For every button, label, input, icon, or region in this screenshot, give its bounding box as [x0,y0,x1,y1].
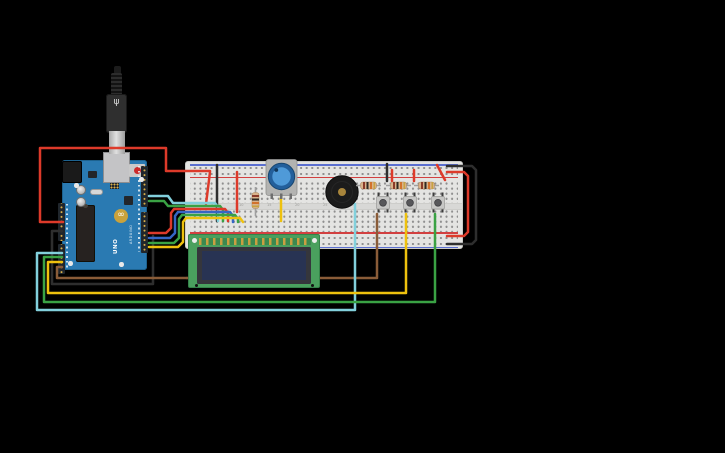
lcd-screen [202,251,306,280]
arduino-uno-board[interactable]: ∞ ARDUINO UNO [62,160,147,270]
lcd-screw-hole [312,238,317,243]
usb-cable[interactable]: ψ [106,64,129,156]
lcd-pin-header[interactable] [199,238,311,246]
usb-plug-metal [109,131,125,154]
circuit-canvas: 51015202530354045 ∞ ARDUINO UNO [0,0,725,453]
lcd-pad [311,284,314,287]
arduino-model-text: UNO [113,236,121,254]
crystal-oscillator [90,189,103,195]
analog-header[interactable] [58,244,65,274]
lcd-screw-hole [192,238,197,243]
lcd-display-16x2[interactable] [188,234,320,288]
atmega-chip [76,205,95,262]
power-header[interactable] [58,203,65,241]
breadboard-column-label: 30 [351,203,355,207]
breadboard-rows-f-j[interactable] [190,208,458,234]
digital-header-upper[interactable] [141,166,148,207]
digital-header-lower[interactable] [141,212,148,253]
arduino-logo: ∞ [114,209,128,223]
breadboard-pos-stripe-top [190,177,458,179]
breadboard-column-label: 35 [379,203,383,207]
usb-cable-strain-relief [111,73,122,95]
lcd-bezel [197,247,311,284]
mounting-hole [139,177,144,182]
usb-trident-icon: ψ [106,96,127,108]
breadboard-column-label: 45 [435,203,439,207]
usb-socket [103,152,130,183]
breadboard-column-label: 5 [211,203,213,207]
silkscreen-left-labels [66,204,68,270]
icsp-pins [110,183,119,189]
regulator-chip [88,171,97,178]
mounting-hole [74,183,79,188]
breadboard-rail-top[interactable] [190,164,458,175]
breadboard-column-label: 40 [407,203,411,207]
breadboard-column-label: 15 [267,203,271,207]
lcd-pad [195,284,198,287]
usb-interface-chip [124,196,133,205]
mounting-hole [119,262,124,267]
power-jack [62,161,82,183]
breadboard-column-label: 20 [295,203,299,207]
breadboard-column-label: 25 [323,203,327,207]
breadboard-rows-a-e[interactable] [190,180,458,206]
capacitor-2 [76,197,86,207]
arduino-brand-text: ARDUINO [129,208,135,244]
breadboard-column-label: 10 [239,203,243,207]
mounting-hole [68,261,73,266]
